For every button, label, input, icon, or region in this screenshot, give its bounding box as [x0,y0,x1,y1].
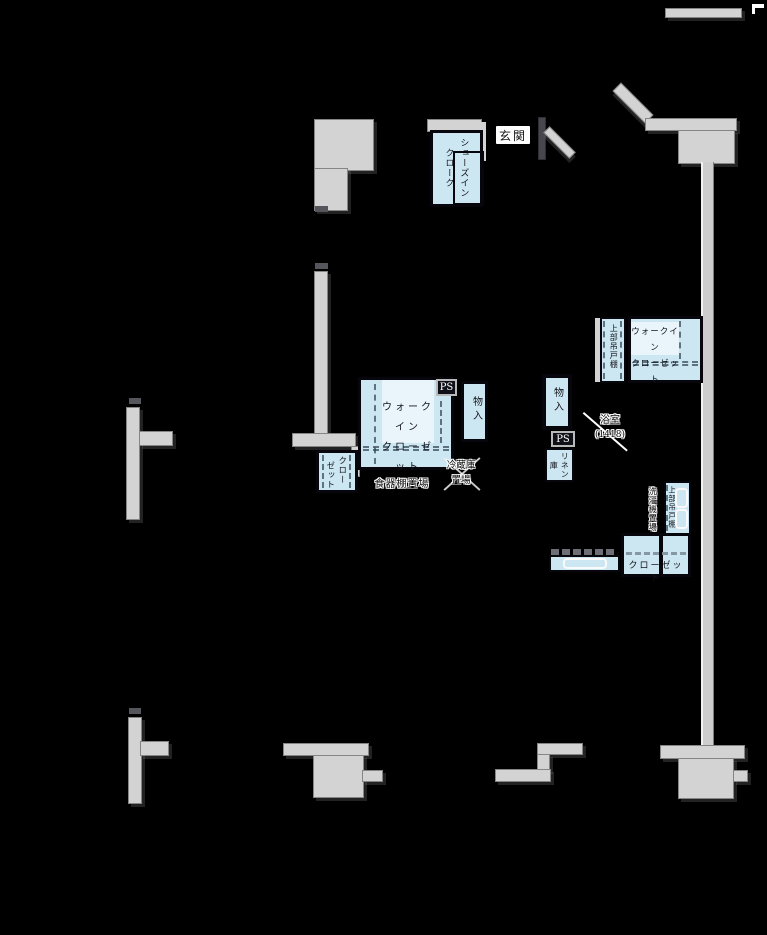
washer-symbol-upper [675,488,688,508]
pipe-space-right-label: PS [556,434,570,445]
cabinet-dashes [620,321,622,379]
cupboard-space-label: 食器棚置場 [374,475,430,490]
shoes-in-closet: シューズイン クローク [430,130,483,207]
fridge-space-label-line2: 置場 [440,474,482,489]
wic-right-label: ウォークイン クローゼット [631,324,679,389]
entry-left-diagonal [543,126,576,159]
pipe-space-right: PS [551,431,575,447]
door-gap-tick [315,263,328,269]
closet-left: クロー ゼット [316,450,358,493]
entry-left-jamb [538,117,546,160]
hanger-pipe-dashes [349,455,351,488]
wall-left-bottom-branch [140,741,169,756]
wall-upper-left-b [314,168,348,211]
floor-plan: 玄関 シューズイン クローク ウォークイン クローゼット PS 物入 物入 PS… [0,0,767,935]
bathroom-label-line1: 浴室 [588,414,632,429]
storage-center: 物入 [461,381,488,442]
hanger-pipe-dashes [440,401,442,443]
wall-top-right-bar [665,8,742,18]
wall-left-bottom-vertical [128,717,142,804]
pipe-space-left: PS [436,379,457,396]
wic-right-label-line1: ウォークイン [631,324,679,356]
upper-cabinet-right-label: 上部吊戸棚 [609,324,618,369]
linen-storage: リネン 庫 [545,448,574,482]
washer-space-label: 洗濯機置場 [648,487,657,532]
wall-upper-left-a [314,119,374,171]
closet-bottom-right-label: クローゼット [624,558,688,584]
upper-cabinet-washer: 上部吊戸棚 [664,481,691,535]
hanger-pipe-dashes [374,384,376,464]
closet-left-label-col2: ゼット [324,461,334,490]
cabinet-dashes [603,321,605,379]
wall-center-vertical [314,271,328,435]
fridge-space-label-line1: 冷蔵庫 [440,459,482,474]
wall-bottom-left-notch [362,770,383,782]
storage-right: 物入 [542,374,572,430]
entrance-label-text: 玄関 [499,127,527,144]
bathroom-label-line2: (1418) [588,429,632,442]
wall-bottom-right-bar [660,745,745,759]
walk-in-closet-right: ウォークイン クローゼット [628,316,703,383]
wall-left-mid-branch [139,431,173,446]
closet-bottom-right: クローゼット [621,533,691,577]
wic-center-label-line1: ウォークイン [382,398,434,438]
hanger-pipe-dashes [626,552,686,555]
wic-right-label-line2: クローゼット [631,356,679,388]
storage-right-label: 物入 [551,387,563,415]
door-gap-tick [129,398,141,404]
wall-right-vertical [701,162,714,747]
shoes-closet-label-col2: クローク [443,148,453,188]
wall-bottom-right-notch [733,770,748,782]
pipe-space-left-label: PS [440,382,454,393]
wall-bottom-right-block [678,758,734,799]
fridge-space-label: 冷蔵庫 置場 [440,459,482,488]
wall-center-foot [292,433,356,447]
storage-center-label: 物入 [470,396,482,424]
hanger-pipe-dashes [679,321,681,359]
door-gap-tick [129,708,141,714]
sink-symbol [563,558,607,569]
closet-left-label-col1: クロー [336,456,346,485]
wic-center-label: ウォークイン クローゼット [382,398,434,478]
wall-entry-block [678,130,735,164]
wic-center-label-line2: クローゼット [382,438,434,478]
vanity-counter [549,555,620,572]
door-gap-tick [315,206,328,212]
linen-label-col2: 庫 [549,461,558,470]
linen-label-col1: リネン [560,452,569,479]
shoes-closet-label-col1: シューズイン [458,138,468,198]
wall-bottom-mid-bar2 [495,769,551,782]
bathroom-label: 浴室 (1418) [588,414,632,442]
wall-bottom-left-block [313,755,364,798]
washer-symbol-lower [675,509,688,529]
upper-cabinet-right: 上部吊戸棚 [600,317,626,383]
wall-left-mid-vertical [126,407,140,520]
corner-mark-vertical [752,4,755,14]
entrance-label: 玄関 [496,126,530,144]
